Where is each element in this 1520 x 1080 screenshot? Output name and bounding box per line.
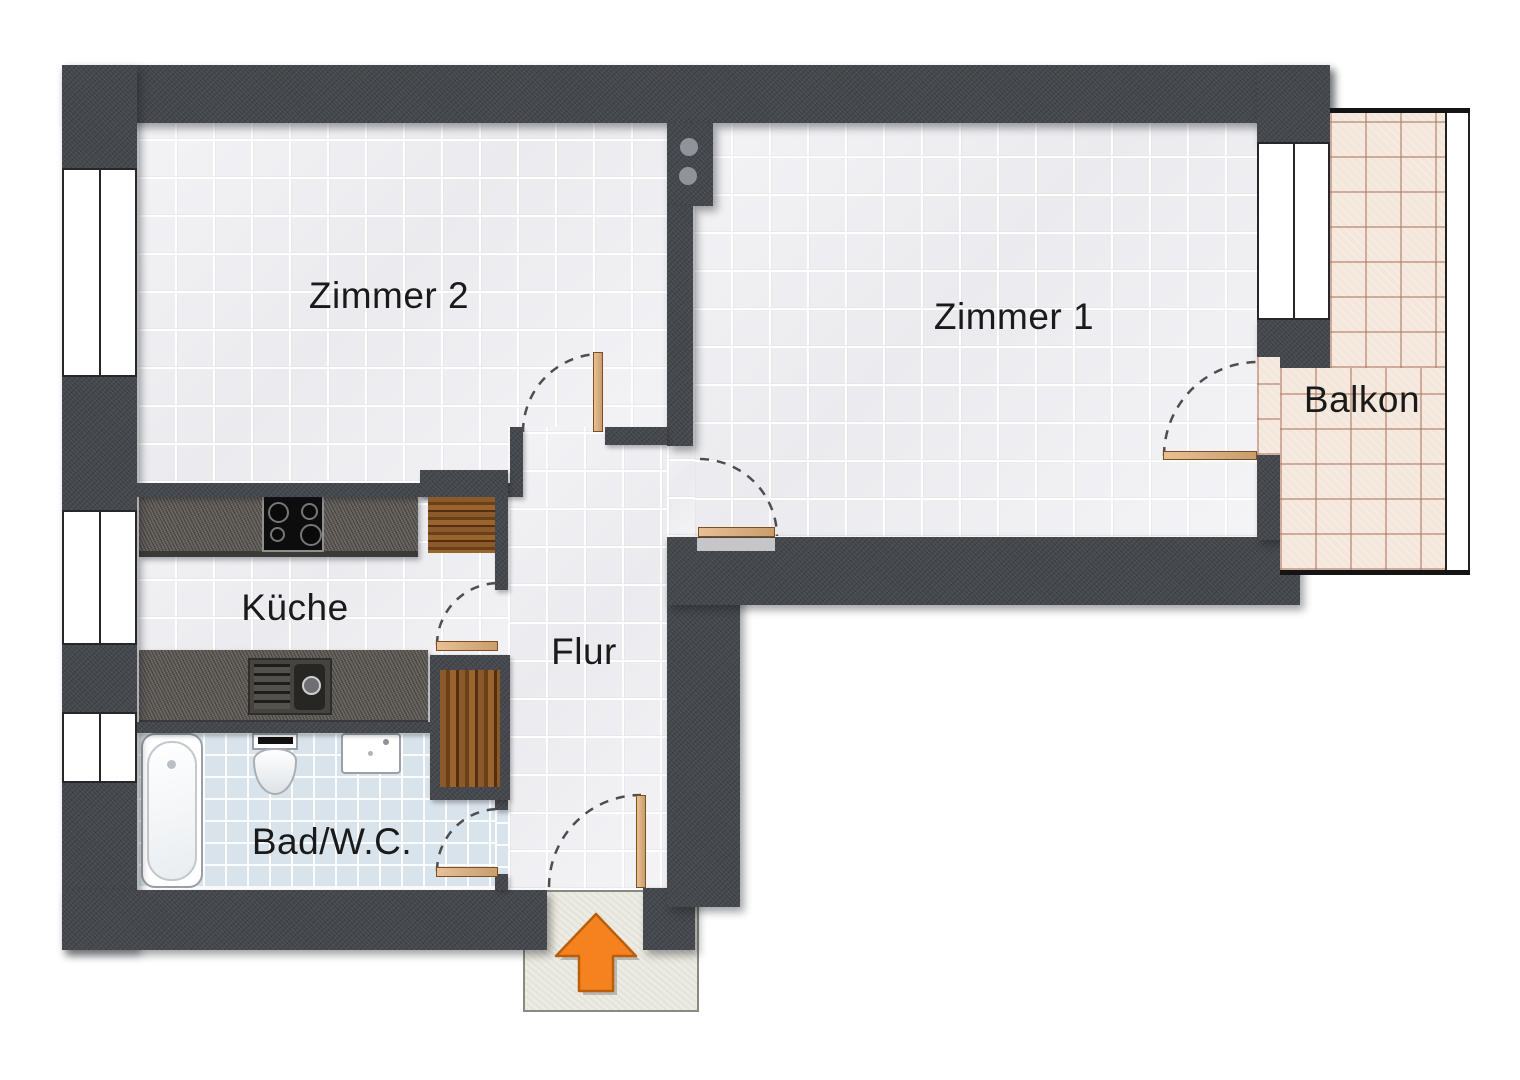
washbasin-drain-icon xyxy=(368,751,373,756)
stove-burner-icon xyxy=(301,503,318,520)
window-zimmer1-icon xyxy=(1257,142,1330,320)
wall-bad-top xyxy=(137,722,430,733)
balkon-border-bottom xyxy=(1280,570,1470,575)
wardrobe-upper-icon xyxy=(428,497,495,553)
entry-door-leaf xyxy=(636,795,646,888)
wall-niche-top xyxy=(420,470,508,497)
pipe-icon xyxy=(680,138,698,156)
stove-burner-icon xyxy=(268,502,289,523)
window-kueche-icon xyxy=(62,510,137,645)
kueche-door-leaf xyxy=(436,641,498,651)
zimmer1-door-threshold xyxy=(697,538,775,551)
bad-door-leaf xyxy=(436,867,498,877)
stove-burner-icon xyxy=(270,527,285,542)
wall-bad-right-upper xyxy=(495,800,508,810)
zimmer2-label: Zimmer 2 xyxy=(309,275,469,317)
pipe-icon xyxy=(679,167,697,185)
wardrobe-lower-icon xyxy=(440,670,500,787)
kueche-label: Küche xyxy=(241,587,348,629)
wall-zimmer2-door-stub xyxy=(605,427,667,445)
zimmer1-label: Zimmer 1 xyxy=(934,296,1094,338)
faucet-icon xyxy=(302,676,321,695)
balkon-railing xyxy=(1445,112,1470,570)
wall-outer-bottom-left xyxy=(62,890,547,950)
toilet-tank-lid-icon xyxy=(258,737,293,744)
wall-outer-top xyxy=(62,65,1330,123)
bad-label: Bad/W.C. xyxy=(252,821,412,863)
zimmer1-door-leaf xyxy=(698,527,775,537)
wall-zimmer1-right-low xyxy=(1257,455,1280,540)
balkon-door-leaf xyxy=(1163,451,1257,460)
wall-divider-top xyxy=(667,123,713,206)
balkon-label: Balkon xyxy=(1304,379,1420,421)
wall-zimmer1-right-mid xyxy=(1257,318,1330,357)
bathtub-drain-icon xyxy=(167,760,176,769)
wall-zimmer1-right-top xyxy=(1257,65,1330,142)
flur-doorway-zimmer1-floor xyxy=(667,445,695,537)
zimmer2-door-leaf xyxy=(593,352,603,432)
wall-niche-right xyxy=(495,497,508,590)
stove-burner-icon xyxy=(300,524,322,546)
window-bad-icon xyxy=(62,712,137,783)
balkon-border-top xyxy=(1330,108,1470,113)
wall-zimmer2-corner xyxy=(510,427,523,497)
washbasin-faucet-icon xyxy=(383,739,389,745)
wall-zimmer1-right-step xyxy=(1280,357,1330,368)
wall-divider xyxy=(667,206,693,446)
balkon-doorway-floor xyxy=(1257,357,1280,455)
sink-drainboard-icon xyxy=(254,664,290,709)
flur-label: Flur xyxy=(551,631,617,673)
balkon-floor-upper xyxy=(1330,112,1445,368)
window-zimmer2-icon xyxy=(62,168,137,377)
floor-plan: Zimmer 2 Zimmer 1 Küche Flur Bad/W.C. Ba… xyxy=(0,0,1520,1080)
